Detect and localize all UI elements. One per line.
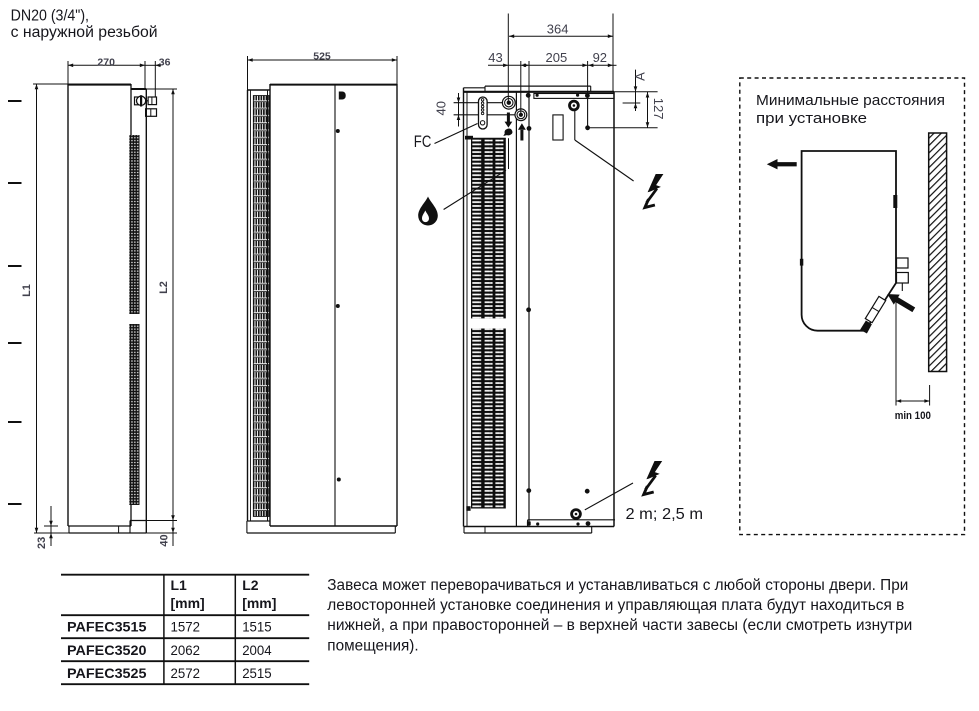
svg-text:при установке: при установке xyxy=(756,110,867,127)
svg-text:36: 36 xyxy=(159,57,171,69)
svg-text:525: 525 xyxy=(313,50,331,62)
svg-text:Минимальные расстояния: Минимальные расстояния xyxy=(756,92,945,109)
svg-text:1572: 1572 xyxy=(171,619,201,635)
svg-text:2515: 2515 xyxy=(242,665,272,681)
svg-text:L2: L2 xyxy=(242,577,259,593)
svg-text:[mm]: [mm] xyxy=(242,595,276,611)
svg-text:1515: 1515 xyxy=(242,619,272,635)
svg-text:PAFEC3525: PAFEC3525 xyxy=(67,665,147,681)
svg-text:40: 40 xyxy=(158,534,170,546)
svg-text:270: 270 xyxy=(97,57,115,69)
svg-text:PAFEC3520: PAFEC3520 xyxy=(67,642,147,658)
svg-text:A: A xyxy=(633,72,648,81)
svg-text:L1: L1 xyxy=(21,284,33,297)
svg-text:92: 92 xyxy=(593,50,607,65)
svg-text:2004: 2004 xyxy=(242,642,272,658)
svg-text:Завеса может переворачиваться: Завеса может переворачиваться и устанавл… xyxy=(327,577,908,594)
svg-text:нижней, а при правосторонней –: нижней, а при правосторонней – в верхней… xyxy=(327,617,912,634)
svg-text:L2: L2 xyxy=(158,281,170,294)
svg-text:L1: L1 xyxy=(171,577,188,593)
svg-text:2 m; 2,5 m: 2 m; 2,5 m xyxy=(626,506,704,523)
svg-text:2572: 2572 xyxy=(171,665,201,681)
svg-text:205: 205 xyxy=(546,50,568,65)
svg-text:2062: 2062 xyxy=(171,642,201,658)
svg-text:43: 43 xyxy=(488,50,502,65)
svg-text:помещения).: помещения). xyxy=(327,637,418,654)
svg-text:PAFEC3515: PAFEC3515 xyxy=(67,619,147,635)
svg-text:FC: FC xyxy=(414,133,432,151)
svg-text:min 100: min 100 xyxy=(895,410,931,422)
svg-text:127: 127 xyxy=(651,98,666,120)
svg-text:DN20 (3/4"),: DN20 (3/4"), xyxy=(11,8,89,25)
svg-text:364: 364 xyxy=(547,21,569,36)
svg-text:с наружной резьбой: с наружной резьбой xyxy=(11,24,158,41)
svg-text:23: 23 xyxy=(36,537,48,549)
svg-text:[mm]: [mm] xyxy=(171,595,205,611)
svg-text:40: 40 xyxy=(433,101,448,115)
svg-text:левосторонней установке соедин: левосторонней установке соединения и упр… xyxy=(327,597,904,614)
